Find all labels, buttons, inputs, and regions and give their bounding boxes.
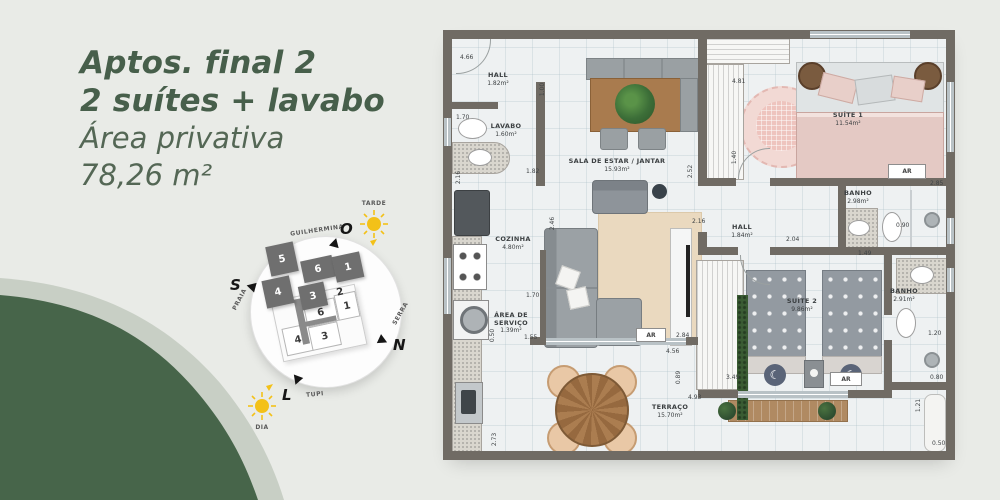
room-label-suite2: SUÍTE 29.86m² <box>772 298 832 313</box>
unit-block-5-shadow: 5 <box>265 241 299 276</box>
planter-hedge <box>737 295 748 420</box>
site-orientation-diagram: GUILHERMINA PRAIA SERRA TUPI O S N L TAR… <box>230 198 410 433</box>
sun-icon <box>357 207 391 247</box>
wall-hall-lavabo <box>452 102 498 109</box>
sink-banho2 <box>910 266 934 284</box>
dimension-label: 1.70 <box>456 114 469 121</box>
wall-suite1-bottom <box>770 178 946 186</box>
shower-head-banho1 <box>924 212 940 228</box>
dimension-label: 1.55 <box>524 334 537 341</box>
title-line-4: 78,26 m² <box>80 157 385 194</box>
dimension-label: 1.40 <box>731 151 738 164</box>
wall-left <box>443 30 452 460</box>
dimension-label: 0.50 <box>932 440 945 447</box>
room-label-sala: SALA DE ESTAR / JANTAR15.93m² <box>557 158 677 173</box>
wall-suite2-bottom <box>698 390 738 398</box>
sink-basin <box>461 390 476 414</box>
dimension-label: 2.16 <box>692 218 705 225</box>
ac-unit-living: AR <box>636 328 666 342</box>
bush-planter <box>718 402 736 420</box>
room-label-hall: HALL1.82m² <box>468 72 528 87</box>
table-plant <box>615 84 655 124</box>
compass-marker-east <box>291 375 303 387</box>
unit-block-3: 3 <box>308 321 342 351</box>
sun-direction-arrow <box>266 384 273 391</box>
cardinal-west: O <box>340 220 353 238</box>
dimension-label: 1.70 <box>526 292 539 299</box>
shower-glass-banho1 <box>910 190 912 248</box>
dimension-label: 3.49 <box>726 374 739 381</box>
washing-machine <box>453 300 489 340</box>
sofa-pillow <box>566 286 590 310</box>
wardrobe-suite1-top <box>702 38 790 64</box>
title-line-1: Aptos. final 2 <box>80 44 385 82</box>
sun-day: DIA <box>242 380 282 431</box>
wall-living-suite1 <box>698 38 707 186</box>
dimension-label: 2.46 <box>549 217 556 230</box>
sink-lavabo <box>468 149 492 166</box>
stove <box>453 244 487 290</box>
wall-suite1-bottom <box>706 178 736 186</box>
dimension-label: 2.73 <box>491 433 498 446</box>
ac-unit-suite1: AR <box>888 164 926 179</box>
ac-unit-suite2: AR <box>830 372 862 386</box>
wall-bottom <box>443 451 955 460</box>
dimension-label: 1.49 <box>858 250 871 257</box>
wall-suite2-bottom <box>848 390 892 398</box>
refrigerator <box>454 190 490 236</box>
sliding-door-suite2-deck <box>738 391 848 398</box>
apartment-title-block: Aptos. final 2 2 suítes + lavabo Área pr… <box>80 44 385 194</box>
window-kitchen <box>444 258 451 314</box>
cardinal-north: N <box>393 336 406 354</box>
window-banho2 <box>947 268 954 292</box>
side-table <box>652 184 667 199</box>
room-label-hall2: HALL1.84m² <box>712 224 772 239</box>
unit-block-4-shadow: 4 <box>261 275 294 308</box>
window-lavabo <box>444 118 451 146</box>
room-label-banho1: BANHO2.98m² <box>830 190 886 205</box>
dimension-label: 2.85 <box>930 180 943 187</box>
toilet-banho2 <box>896 308 916 338</box>
dimension-label: 1.21 <box>915 399 922 412</box>
moon-pillow-icon: ☾ <box>764 364 786 386</box>
wall-kitchen-lower <box>540 250 546 338</box>
dimension-label: 4.93 <box>688 394 701 401</box>
window-banho1 <box>947 218 954 244</box>
sun-day-label: DIA <box>242 424 282 431</box>
tv-icon <box>686 245 690 317</box>
bed-pillow <box>890 76 925 103</box>
dining-corner-seat <box>680 78 698 132</box>
bush-planter <box>818 402 836 420</box>
sun-afternoon: TARDE <box>354 200 394 251</box>
sun-direction-arrow <box>370 239 377 246</box>
nightstand-suite2 <box>804 360 824 388</box>
wall-suite2-top <box>698 247 738 255</box>
cardinal-east: L <box>282 386 292 404</box>
dimension-label: 1.00 <box>539 83 546 96</box>
wall-banho2-bottom <box>888 382 946 390</box>
kids-blanket <box>822 270 882 358</box>
sun-afternoon-label: TARDE <box>354 200 394 207</box>
room-label-cozinha: COZINHA4.80m² <box>483 236 543 251</box>
dimension-label: 4.56 <box>666 348 679 355</box>
room-label-suite1: SUÍTE 111.54m² <box>818 112 878 127</box>
window-suite1 <box>810 31 910 38</box>
dimension-label: 0.50 <box>489 329 496 342</box>
dimension-label: 0.89 <box>675 371 682 384</box>
dimension-label: 0.80 <box>930 374 943 381</box>
room-label-lavabo: LAVABO1.60m² <box>476 123 536 138</box>
dining-chair <box>600 128 628 150</box>
dining-chair <box>638 128 666 150</box>
service-sink <box>455 382 483 424</box>
title-line-3: Área privativa <box>80 120 385 157</box>
dimension-label: 2.52 <box>687 165 694 178</box>
kids-blanket <box>746 270 806 358</box>
dining-bench <box>586 58 700 80</box>
dimension-label: 2.16 <box>455 171 462 184</box>
street-tupi: TUPI <box>306 390 325 399</box>
sink-banho1 <box>848 220 870 236</box>
cardinal-south: S <box>230 276 241 294</box>
window-suite1-side <box>947 82 954 152</box>
room-label-banho2: BANHO2.91m² <box>876 288 932 303</box>
armchair <box>592 180 648 214</box>
washer-door-icon <box>460 306 488 334</box>
shower-head-banho2 <box>924 352 940 368</box>
room-label-terraco: TERRAÇO15.70m² <box>640 404 700 419</box>
wall-suite2-banho2 <box>884 255 892 315</box>
apartment-floorplan: AR ☾ ☾ AR AR HALL1.82m² LAVABO1.60m² COZ… <box>440 22 958 470</box>
bed2-suite2: ☾ <box>822 270 880 386</box>
terrace-round-table <box>555 373 629 447</box>
dimension-label: 2.84 <box>676 332 689 339</box>
dimension-label: 1.82 <box>526 168 539 175</box>
dimension-label: 2.04 <box>786 236 799 243</box>
bed1-suite2: ☾ <box>746 270 804 386</box>
dimension-label: 0.90 <box>896 222 909 229</box>
unit-block-2-shadow: 2 <box>331 283 350 302</box>
dimension-label: 1.20 <box>928 330 941 337</box>
dimension-label: 4.81 <box>732 78 745 85</box>
lamp-icon <box>810 369 818 377</box>
bed-pillow <box>854 74 895 105</box>
tv-panel <box>670 228 692 346</box>
title-line-2: 2 suítes + lavabo <box>80 82 385 120</box>
sun-icon <box>245 380 279 420</box>
dimension-label: 4.66 <box>460 54 473 61</box>
